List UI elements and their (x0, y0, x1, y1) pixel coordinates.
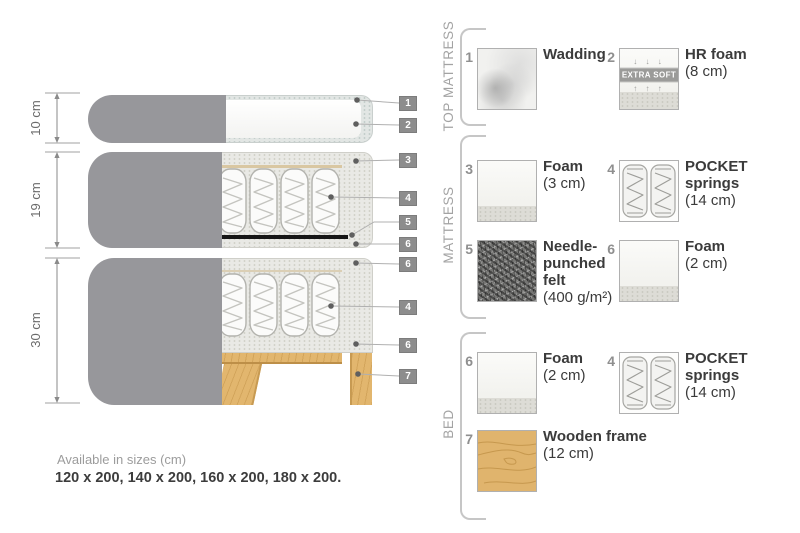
callout-box-3: 3 (399, 153, 417, 168)
callout-box-2: 2 (399, 118, 417, 133)
callout-box-4b: 4 (399, 300, 417, 315)
callout-box-6c: 6 (399, 338, 417, 353)
callout-box-5: 5 (399, 215, 417, 230)
callout-box-6b: 6 (399, 257, 417, 272)
callout-box-6: 6 (399, 237, 417, 252)
callout-box-4: 4 (399, 191, 417, 206)
bed-construction-diagram: 10 cm 19 cm 30 cm 1 2 3 4 5 6 6 4 6 7 TO… (0, 0, 800, 533)
callout-box-1: 1 (399, 96, 417, 111)
callout-box-7: 7 (399, 369, 417, 384)
